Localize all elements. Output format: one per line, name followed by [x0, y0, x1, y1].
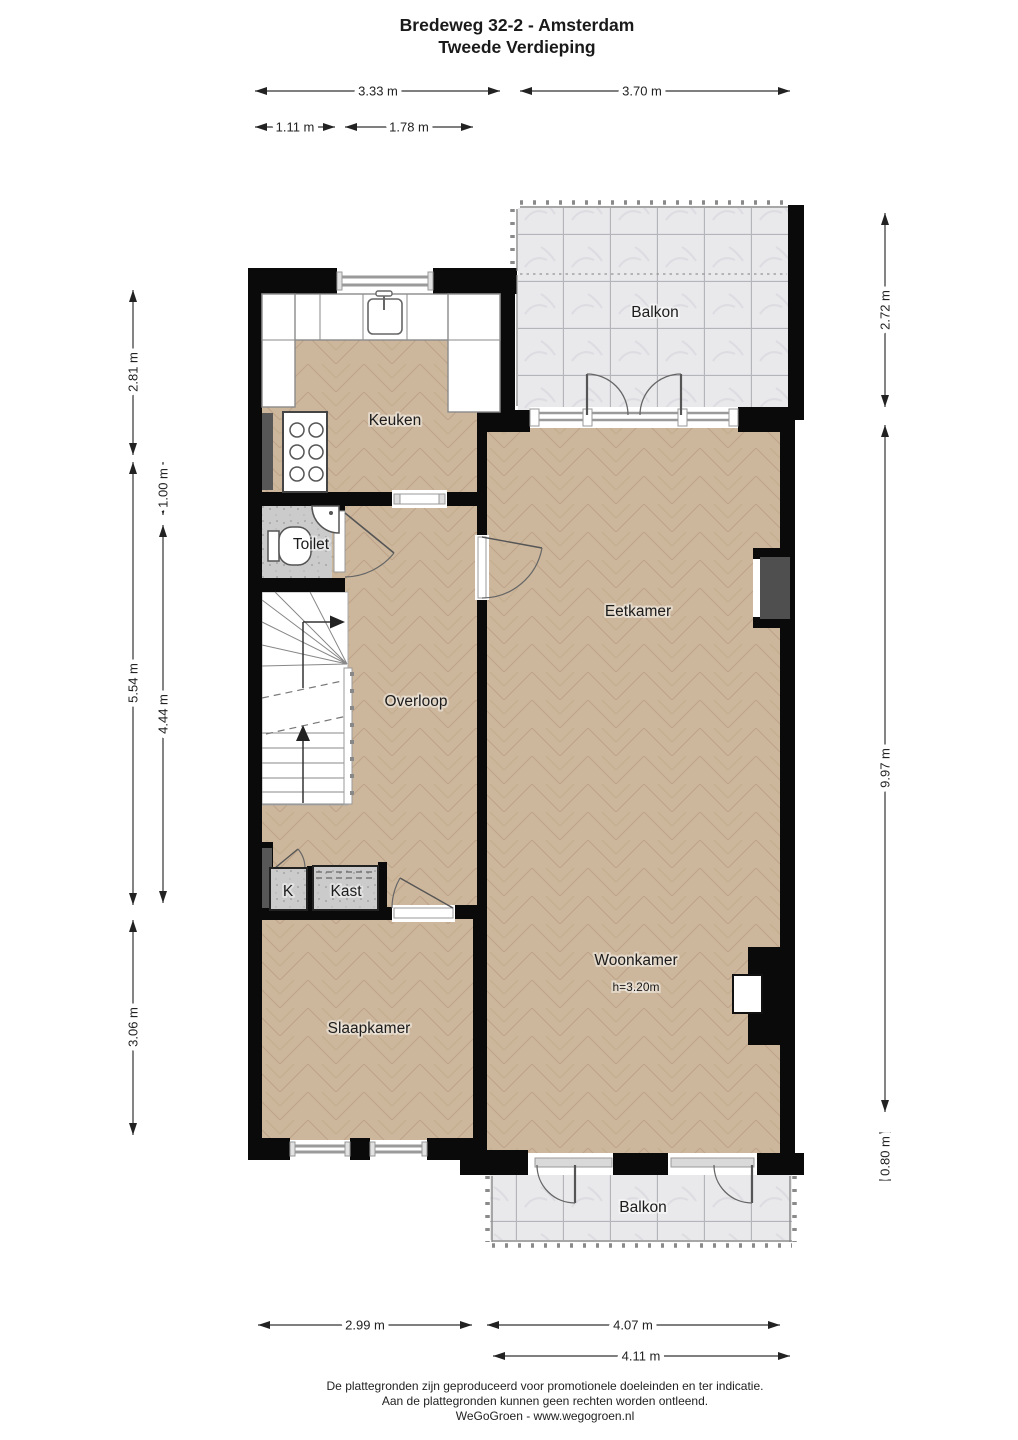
slaapkamer-window-2	[370, 1140, 427, 1158]
dim-left-5-54m: 5.54 m	[126, 462, 141, 905]
woonkamer-chimney-niche	[733, 975, 762, 1013]
dim-bottom-2-99m: 2.99 m	[258, 1318, 472, 1333]
kitchen-stove	[283, 412, 327, 492]
dim-label: 4.44 m	[156, 694, 171, 734]
wall-woonkamer-se-pier	[757, 1153, 804, 1175]
dim-left-2-81m: 2.81 m	[126, 290, 141, 455]
balkon-top-label: Balkon	[631, 304, 678, 321]
dim-label: 4.07 m	[613, 1318, 653, 1333]
dim-label: 5.54 m	[126, 663, 141, 703]
stairs-balustrade	[344, 668, 352, 804]
dim-label: 9.97 m	[878, 748, 893, 788]
dim-label: 2.72 m	[878, 290, 893, 330]
footer-line-3: WeGoGroen - www.wegogroen.nl	[456, 1409, 635, 1423]
kitchen-appliance	[262, 413, 273, 490]
keuken-passage	[392, 490, 447, 508]
wall-woonkamer-bottom-pier	[613, 1153, 668, 1175]
wall-left	[248, 268, 262, 1160]
dim-top-3-70m: 3.70 m	[520, 84, 790, 99]
dim-label: 0.80 m	[878, 1136, 893, 1176]
dim-left-4-44m: 4.44 m	[156, 525, 171, 903]
woonkamer-label: Woonkamer	[594, 952, 677, 969]
dim-top-1-78m: 1.78 m	[345, 120, 473, 135]
wall-slaapkamer-bottom-pier1	[248, 1138, 290, 1160]
kitchen-counter-left	[262, 294, 295, 407]
kitchen-faucet	[376, 291, 392, 296]
dim-bottom-4-07m: 4.07 m	[487, 1318, 780, 1333]
dim-left-3-06m: 3.06 m	[126, 920, 141, 1135]
dim-label: 3.33 m	[358, 84, 398, 99]
toilet-tank	[268, 531, 279, 561]
toilet-label: Toilet	[293, 536, 330, 553]
dim-top-1-11m: 1.11 m	[255, 120, 335, 135]
page-title-line-2: Tweede Verdieping	[438, 37, 595, 57]
dim-label: 3.70 m	[622, 84, 662, 99]
dim-left-1-00m: 1.00 m	[156, 462, 171, 515]
wall-keuken-right	[500, 268, 515, 413]
dim-right-0-80m: 0.80 m	[878, 1133, 893, 1180]
wall-slaapkamer-bottom-pier2	[350, 1138, 370, 1160]
dim-label: 3.06 m	[126, 1007, 141, 1047]
dim-label: 2.99 m	[345, 1318, 385, 1333]
floors	[262, 208, 792, 1240]
wall-balkon-right	[788, 205, 804, 420]
slaapkamer-label: Slaapkamer	[328, 1020, 411, 1037]
dim-right-9-97m: 9.97 m	[878, 425, 893, 1112]
wall-slaapkamer-woonkamer	[473, 905, 487, 1160]
dim-label: 1.11 m	[276, 120, 315, 135]
slaapkamer-window-1	[290, 1140, 350, 1158]
footer: De plattegronden zijn geproduceerd voor …	[327, 1379, 764, 1423]
wall-kast-right	[378, 862, 387, 912]
balkon-bottom-label: Balkon	[619, 1199, 666, 1216]
wall-woonkamer-sw-corner	[460, 1150, 528, 1175]
wall-toilet-bottom	[248, 578, 345, 592]
eetkamer-niche-opening	[753, 559, 760, 617]
toilet-sink-tap	[329, 511, 333, 515]
woonkamer-height-label: h=3.20m	[612, 980, 659, 994]
dim-top-3-33m: 3.33 m	[255, 84, 500, 99]
footer-line-1: De plattegronden zijn geproduceerd voor …	[327, 1379, 764, 1393]
dim-bottom-4-11m: 4.11 m	[493, 1349, 790, 1364]
wall-keuken-bottom-left	[248, 492, 392, 506]
overloop-label: Overloop	[385, 693, 448, 710]
footer-line-2: Aan de plattegronden kunnen geen rechten…	[382, 1394, 708, 1408]
kast-label: Kast	[330, 883, 362, 900]
eetkamer-woonkamer-floor	[487, 425, 780, 1153]
kitchen-counter-right	[448, 294, 500, 412]
wall-keuken-top-left	[248, 268, 337, 294]
dim-right-2-72m: 2.72 m	[878, 213, 893, 407]
wall-right	[780, 420, 795, 1175]
keuken-label: Keuken	[369, 412, 422, 429]
eetkamer-niche	[760, 557, 790, 619]
keuken-window	[337, 268, 433, 294]
eetkamer-label: Eetkamer	[605, 603, 671, 620]
k-label: K	[283, 883, 294, 900]
floorplan-page: Bredeweg 32-2 - Amsterdam Tweede Verdiep…	[0, 0, 1018, 1440]
dim-label: 1.00 m	[156, 468, 171, 508]
dim-label: 4.11 m	[622, 1349, 661, 1364]
wall-overloop-eetkamer-upper	[477, 428, 487, 535]
floorplan-canvas: Bredeweg 32-2 - Amsterdam Tweede Verdiep…	[0, 0, 1018, 1440]
dim-label: 1.78 m	[389, 120, 429, 135]
dim-label: 2.81 m	[126, 352, 141, 392]
page-title-line-1: Bredeweg 32-2 - Amsterdam	[400, 15, 635, 35]
